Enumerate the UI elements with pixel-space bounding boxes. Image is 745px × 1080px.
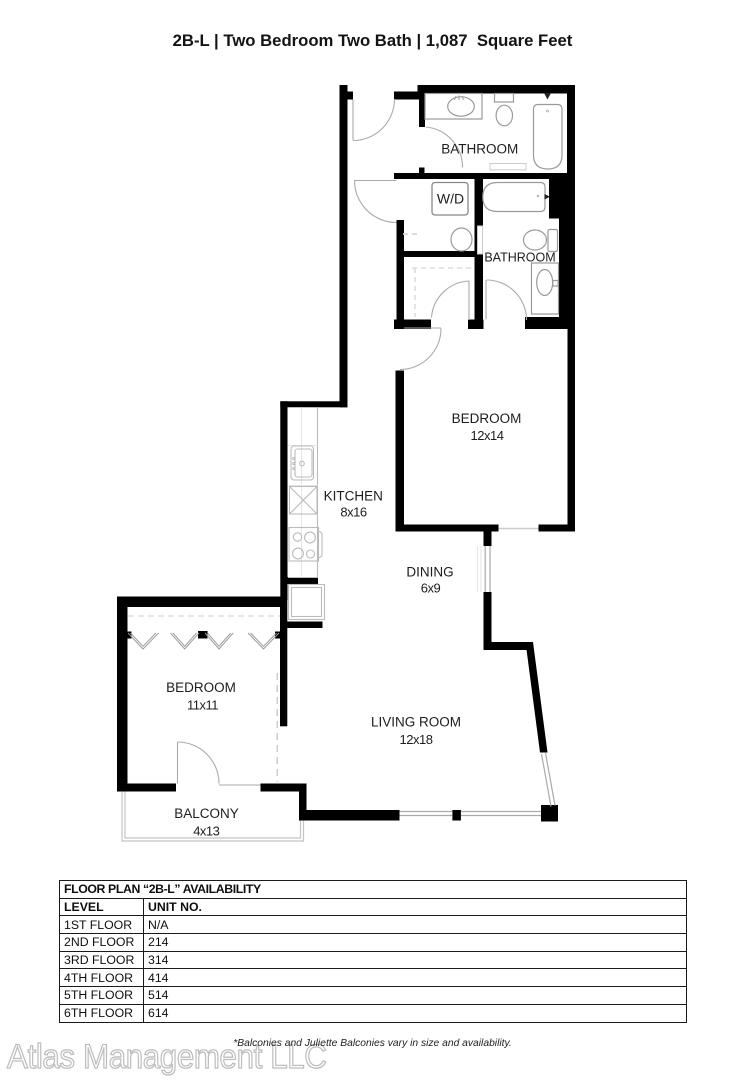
svg-text:W/D: W/D: [437, 191, 464, 207]
svg-text:BEDROOM: BEDROOM: [452, 411, 522, 426]
svg-text:12x18: 12x18: [400, 732, 433, 747]
svg-text:BEDROOM: BEDROOM: [166, 680, 236, 695]
svg-text:BATHROOM: BATHROOM: [484, 250, 555, 264]
svg-text:BATHROOM: BATHROOM: [441, 141, 518, 156]
svg-text:6x9: 6x9: [421, 580, 441, 595]
svg-text:12x14: 12x14: [471, 428, 504, 443]
svg-text:DINING: DINING: [406, 564, 453, 579]
svg-text:11x11: 11x11: [187, 698, 218, 713]
svg-text:8x16: 8x16: [340, 505, 366, 520]
svg-text:BALCONY: BALCONY: [174, 806, 239, 821]
svg-text:KITCHEN: KITCHEN: [324, 489, 383, 504]
svg-text:4x13: 4x13: [193, 824, 219, 839]
svg-text:LIVING ROOM: LIVING ROOM: [371, 715, 461, 730]
